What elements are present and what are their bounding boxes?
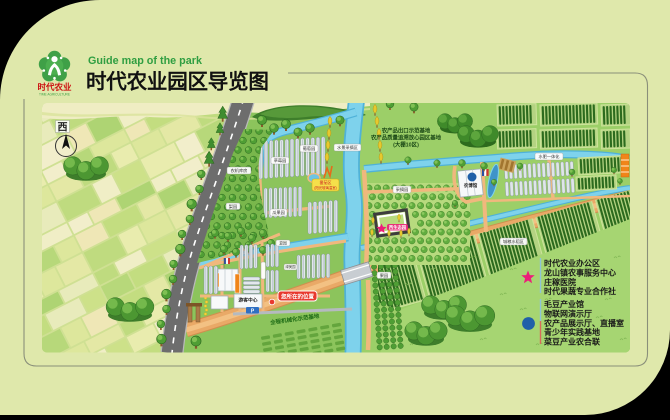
svg-text:菜豆产业农合联: 菜豆产业农合联 (543, 337, 600, 347)
svg-text:(阳光玻璃温室): (阳光玻璃温室) (314, 185, 337, 190)
svg-text:葡萄园: 葡萄园 (303, 145, 316, 152)
svg-text:农产品出口示范基地: 农产品出口示范基地 (382, 127, 431, 135)
svg-text:时代农业办公区: 时代农业办公区 (544, 258, 600, 268)
svg-text:龙山镇农事服务中心: 龙山镇农事服务中心 (543, 267, 616, 277)
svg-text:庄稼医院: 庄稼医院 (544, 277, 576, 287)
svg-text:TIME AGRICULTURE: TIME AGRICULTURE (39, 93, 70, 97)
svg-text:游客中心: 游客中心 (238, 297, 257, 304)
svg-text:毛豆产业馆: 毛豆产业馆 (544, 299, 584, 309)
svg-text:城粮水稻区: 城粮水稻区 (503, 238, 524, 245)
svg-text:番茄区: 番茄区 (320, 179, 332, 185)
svg-text:时代农业: 时代农业 (37, 82, 72, 92)
svg-text:采摘园: 采摘园 (396, 186, 409, 193)
svg-text:农产品展示厅、直播室: 农产品展示厅、直播室 (543, 318, 624, 328)
svg-text:草莓园: 草莓园 (274, 157, 287, 164)
svg-text:农产品质量追溯放心园区基地: 农产品质量追溯放心园区基地 (371, 134, 442, 142)
svg-text:Guide map of the park: Guide map of the park (88, 55, 203, 67)
svg-text:水景采摘区: 水景采摘区 (337, 144, 358, 151)
svg-text:时代果蔬专业合作社: 时代果蔬专业合作社 (544, 286, 616, 296)
svg-text:梨园: 梨园 (229, 203, 237, 210)
svg-text:物联网演示厅: 物联网演示厅 (544, 308, 592, 318)
svg-text:农机库房: 农机库房 (231, 167, 248, 174)
svg-text:农博馆: 农博馆 (463, 182, 478, 189)
svg-text:绿美园: 绿美园 (285, 264, 296, 269)
svg-text:西: 西 (58, 122, 68, 134)
svg-text:青少年实践基地: 青少年实践基地 (544, 327, 600, 337)
svg-text:(大棚10区): (大棚10区) (393, 141, 419, 149)
svg-text:时代农业园区导览图: 时代农业园区导览图 (86, 70, 269, 94)
svg-text:您所在的位置: 您所在的位置 (281, 292, 315, 300)
svg-text:夏园: 夏园 (279, 240, 287, 245)
svg-text:水肥一体化: 水肥一体化 (539, 153, 561, 160)
svg-text:西生态园: 西生态园 (389, 224, 407, 231)
